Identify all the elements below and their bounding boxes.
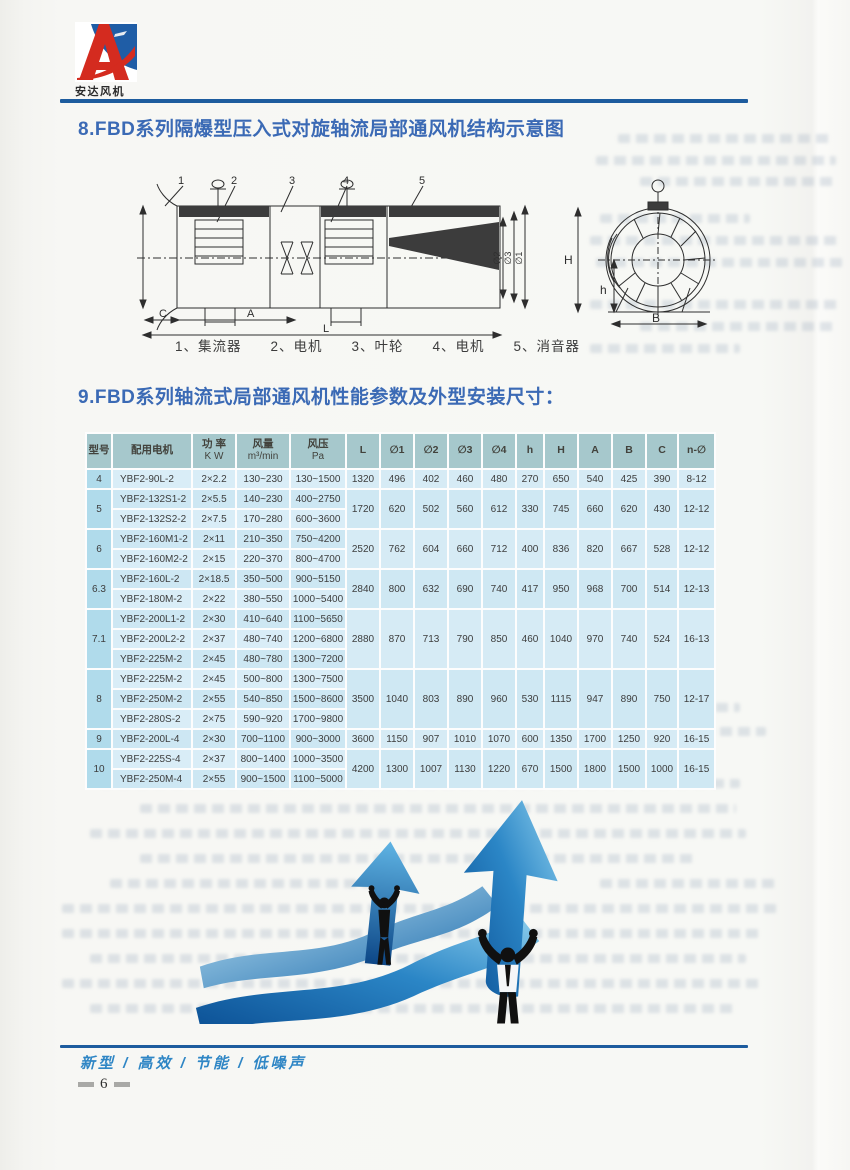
dim-c: C [159,308,167,320]
dimension-cell: 1320 [346,469,380,489]
airflow-cell: 380~550 [236,589,290,609]
dimension-cell: 1000 [646,749,678,789]
dim-B: B [652,311,660,325]
dimension-cell: 700 [612,569,646,609]
power-cell: 2×45 [192,649,236,669]
dimension-cell: 690 [448,569,482,609]
dimension-cell: 12-17 [678,669,715,729]
column-header: 功 率K W [192,433,236,469]
dimension-cell: 417 [516,569,544,609]
catalog-page: 安达风机 8.FBD系列隔爆型压入式对旋轴流局部通风机结构示意图 [0,0,850,1170]
dimension-cell: 850 [482,609,516,669]
dimension-cell: 920 [646,729,678,749]
dimension-cell: 620 [380,489,414,529]
table-row: 7.1YBF2-200L1-22×30410~6401100~565028808… [86,609,715,629]
column-header: H [544,433,578,469]
fan-front-view-drawing: H h B [548,172,753,340]
dimension-cell: 514 [646,569,678,609]
dimension-cell: 1350 [544,729,578,749]
page-number-value: 6 [100,1076,108,1093]
dimension-cell: 1115 [544,669,578,729]
dimension-cell: 745 [544,489,578,529]
dim-l: L [323,323,329,335]
dimension-cell: 632 [414,569,448,609]
dimension-cell: 12-12 [678,489,715,529]
dimension-cell: 612 [482,489,516,529]
dimension-cell: 604 [414,529,448,569]
dimension-cell: 960 [482,669,516,729]
airflow-cell: 220~370 [236,549,290,569]
dimension-cell: 8-12 [678,469,715,489]
column-header: C [646,433,678,469]
dimension-cell: 400 [516,529,544,569]
pressure-cell: 130~1500 [290,469,346,489]
power-cell: 2×30 [192,609,236,629]
motor-cell: YBF2-225M-2 [112,669,192,689]
table-row: 6.3YBF2-160L-22×18.5350~500900~515028408… [86,569,715,589]
pressure-cell: 1200~6800 [290,629,346,649]
performance-table-wrap: 型号配用电机功 率K W风量m³/min风压PaL∅1∅2∅3∅4hHABCn-… [85,432,716,790]
dim-h: h [600,283,607,297]
callout-2: 2 [231,175,237,187]
airflow-cell: 140~230 [236,489,290,509]
dim-phi3: ∅3 [503,252,513,265]
company-logo: 安达风机 [75,22,145,100]
column-header: ∅3 [448,433,482,469]
callout-5: 5 [419,175,425,187]
dimension-cell: 16-13 [678,609,715,669]
dimension-cell: 480 [482,469,516,489]
motor-cell: YBF2-160L-2 [112,569,192,589]
pressure-cell: 600~3600 [290,509,346,529]
motor-cell: YBF2-250M-4 [112,769,192,789]
motor-cell: YBF2-132S1-2 [112,489,192,509]
dimension-cell: 460 [516,609,544,669]
model-cell: 7.1 [86,609,112,669]
power-cell: 2×18.5 [192,569,236,589]
dimension-cell: 1150 [380,729,414,749]
dimension-cell: 2840 [346,569,380,609]
motor-cell: YBF2-160M2-2 [112,549,192,569]
column-header: ∅2 [414,433,448,469]
pressure-cell: 750~4200 [290,529,346,549]
table-row: 4YBF2-90L-22×2.2130~230130~1500132049640… [86,469,715,489]
power-cell: 2×2.2 [192,469,236,489]
column-header: ∅4 [482,433,516,469]
dimension-cell: 540 [578,469,612,489]
pressure-cell: 400~2750 [290,489,346,509]
airflow-cell: 210~350 [236,529,290,549]
dimension-cell: 402 [414,469,448,489]
dimension-cell: 667 [612,529,646,569]
power-cell: 2×7.5 [192,509,236,529]
power-cell: 2×5.5 [192,489,236,509]
dimension-cell: 502 [414,489,448,529]
airflow-cell: 130~230 [236,469,290,489]
dimension-cell: 660 [448,529,482,569]
pressure-cell: 1000~3500 [290,749,346,769]
dimension-cell: 528 [646,529,678,569]
motor-cell: YBF2-250M-2 [112,689,192,709]
dimension-cell: 3500 [346,669,380,729]
dimension-cell: 1070 [482,729,516,749]
motor-cell: YBF2-225M-2 [112,649,192,669]
growth-arrows-illustration [192,772,604,1029]
pressure-cell: 1000~5400 [290,589,346,609]
motor-cell: YBF2-225S-4 [112,749,192,769]
dimension-cell: 530 [516,669,544,729]
page-number-dash [114,1082,130,1087]
motor-cell: YBF2-132S2-2 [112,509,192,529]
power-cell: 2×37 [192,749,236,769]
dimension-cell: 950 [544,569,578,609]
dimension-cell: 1700 [578,729,612,749]
power-cell: 2×22 [192,589,236,609]
dimension-cell: 870 [380,609,414,669]
motor-cell: YBF2-280S-2 [112,709,192,729]
airflow-cell: 500~800 [236,669,290,689]
model-cell: 8 [86,669,112,729]
dimension-cell: 1040 [380,669,414,729]
dimension-cell: 425 [612,469,646,489]
dimension-cell: 270 [516,469,544,489]
dimension-cell: 836 [544,529,578,569]
dimension-cell: 460 [448,469,482,489]
model-cell: 6 [86,529,112,569]
column-header: B [612,433,646,469]
power-cell: 2×30 [192,729,236,749]
dimension-cell: 790 [448,609,482,669]
pressure-cell: 900~3000 [290,729,346,749]
motor-cell: YBF2-200L1-2 [112,609,192,629]
page-number-dash [78,1082,94,1087]
pressure-cell: 900~5150 [290,569,346,589]
dimension-cell: 650 [544,469,578,489]
airflow-cell: 590~920 [236,709,290,729]
dimension-cell: 430 [646,489,678,529]
callout-3: 3 [289,175,295,187]
dimension-cell: 762 [380,529,414,569]
pressure-cell: 1100~5650 [290,609,346,629]
dimension-cell: 12-13 [678,569,715,609]
airflow-cell: 700~1100 [236,729,290,749]
table-row: 6YBF2-160M1-22×11210~350750~420025207626… [86,529,715,549]
dimension-cell: 970 [578,609,612,669]
pressure-cell: 1300~7500 [290,669,346,689]
dimension-cell: 496 [380,469,414,489]
airflow-cell: 410~640 [236,609,290,629]
dimension-cell: 890 [448,669,482,729]
callout-4: 4 [343,175,349,187]
dim-phi1-right: ∅1 [514,252,524,265]
performance-table: 型号配用电机功 率K W风量m³/min风压PaL∅1∅2∅3∅4hHABCn-… [85,432,716,790]
dimension-cell: 740 [612,609,646,669]
model-cell: 9 [86,729,112,749]
motor-cell: YBF2-160M1-2 [112,529,192,549]
pressure-cell: 1700~9800 [290,709,346,729]
dimension-cell: 740 [482,569,516,609]
pressure-cell: 800~4700 [290,549,346,569]
airflow-cell: 350~500 [236,569,290,589]
table-row: 10YBF2-225S-42×37800~14001000~3500420013… [86,749,715,769]
header-rule [60,99,748,103]
dimension-cell: 2880 [346,609,380,669]
dimension-cell: 820 [578,529,612,569]
dimension-cell: 620 [612,489,646,529]
section-8-title: 8.FBD系列隔爆型压入式对旋轴流局部通风机结构示意图 [78,114,564,141]
dimension-cell: 2520 [346,529,380,569]
model-cell: 10 [86,749,112,789]
dimension-cell: 1720 [346,489,380,529]
dim-H: H [564,253,573,267]
dimension-cell: 524 [646,609,678,669]
brand-name: 安达风机 [75,83,145,99]
power-cell: 2×15 [192,549,236,569]
dimension-cell: 12-12 [678,529,715,569]
power-cell: 2×75 [192,709,236,729]
diagram-caption: 1、集流器 2、电机 3、叶轮 4、电机 5、消音器 [175,335,580,355]
dimension-cell: 3600 [346,729,380,749]
column-header: 型号 [86,433,112,469]
dimension-cell: 16-15 [678,729,715,749]
airflow-cell: 480~780 [236,649,290,669]
column-header: 风压Pa [290,433,346,469]
power-cell: 2×37 [192,629,236,649]
power-cell: 2×11 [192,529,236,549]
power-cell: 2×45 [192,669,236,689]
dimension-cell: 16-15 [678,749,715,789]
callout-1: 1 [178,175,184,187]
dim-phi2: ∅2 [492,252,502,265]
dimension-cell: 1250 [612,729,646,749]
fan-side-view-drawing: 1 2 3 4 5 ∅1 ∅2 ∅3 ∅1 C A L [135,172,535,340]
dim-a: A [247,308,255,320]
table-header-row: 型号配用电机功 率K W风量m³/min风压PaL∅1∅2∅3∅4hHABCn-… [86,433,715,469]
logo-mark [75,22,137,82]
column-header: 配用电机 [112,433,192,469]
motor-cell: YBF2-90L-2 [112,469,192,489]
power-cell: 2×55 [192,689,236,709]
footer-slogan: 新型 / 高效 / 节能 / 低噪声 [80,1052,307,1073]
dimension-cell: 968 [578,569,612,609]
section-9-title: 9.FBD系列轴流式局部通风机性能参数及外型安装尺寸： [78,382,564,409]
page-number: 6 [78,1076,130,1093]
model-cell: 4 [86,469,112,489]
column-header: 风量m³/min [236,433,290,469]
motor-cell: YBF2-180M-2 [112,589,192,609]
table-row: 8YBF2-225M-22×45500~8001300~750035001040… [86,669,715,689]
dimension-cell: 750 [646,669,678,729]
dimension-cell: 800 [380,569,414,609]
dimension-cell: 947 [578,669,612,729]
dimension-cell: 330 [516,489,544,529]
dimension-cell: 713 [414,609,448,669]
dimension-cell: 390 [646,469,678,489]
column-header: A [578,433,612,469]
column-header: n-∅ [678,433,715,469]
column-header: L [346,433,380,469]
column-header: h [516,433,544,469]
dimension-cell: 660 [578,489,612,529]
model-cell: 5 [86,489,112,529]
dimension-cell: 1040 [544,609,578,669]
pressure-cell: 1500~8600 [290,689,346,709]
pressure-cell: 1300~7200 [290,649,346,669]
dimension-cell: 600 [516,729,544,749]
airflow-cell: 480~740 [236,629,290,649]
airflow-cell: 170~280 [236,509,290,529]
dimension-cell: 712 [482,529,516,569]
airflow-cell: 800~1400 [236,749,290,769]
column-header: ∅1 [380,433,414,469]
dimension-cell: 1010 [448,729,482,749]
table-row: 5YBF2-132S1-22×5.5140~230400~27501720620… [86,489,715,509]
model-cell: 6.3 [86,569,112,609]
motor-cell: YBF2-200L-4 [112,729,192,749]
motor-cell: YBF2-200L2-2 [112,629,192,649]
table-row: 9YBF2-200L-42×30700~1100900~300036001150… [86,729,715,749]
dimension-cell: 907 [414,729,448,749]
dimension-cell: 803 [414,669,448,729]
footer-rule [60,1045,748,1048]
dimension-cell: 890 [612,669,646,729]
dimension-cell: 560 [448,489,482,529]
dimension-cell: 1500 [612,749,646,789]
airflow-cell: 540~850 [236,689,290,709]
